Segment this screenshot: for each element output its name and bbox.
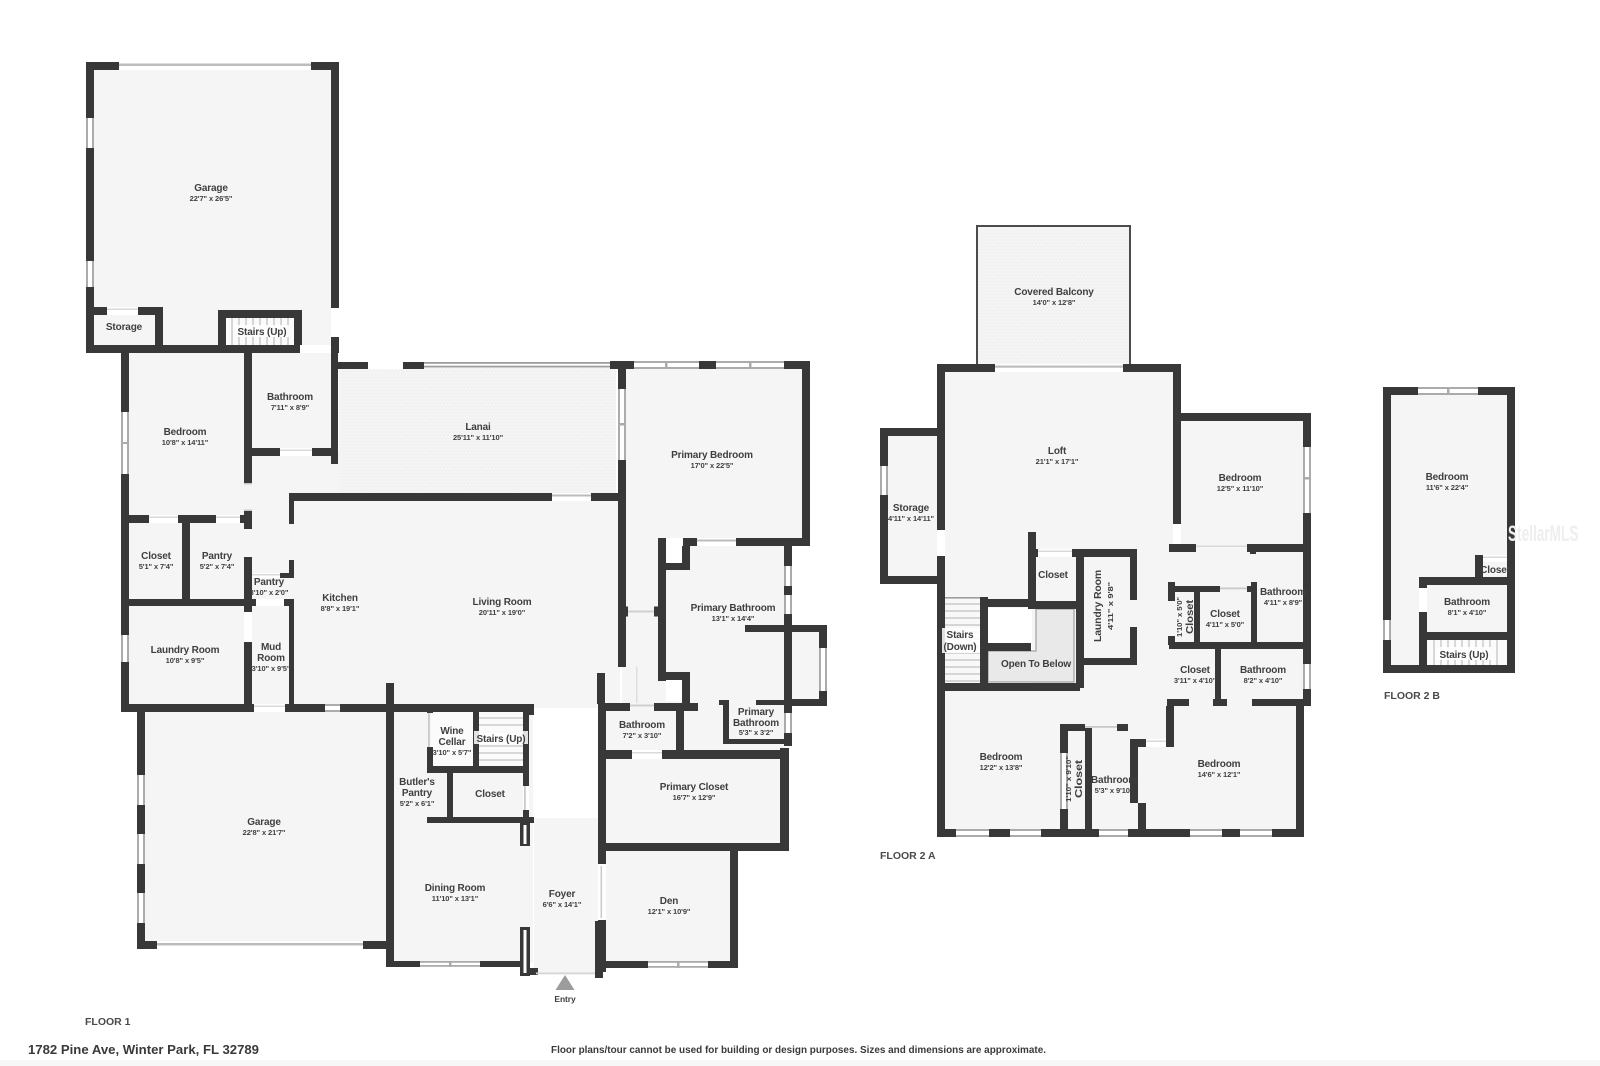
svg-text:14'0" x 12'8": 14'0" x 12'8" (1033, 298, 1076, 307)
svg-text:11'6" x 22'4": 11'6" x 22'4" (1426, 483, 1469, 492)
svg-text:17'0" x 22'5": 17'0" x 22'5" (691, 461, 734, 470)
svg-text:14'6" x 12'1": 14'6" x 12'1" (1198, 770, 1241, 779)
svg-text:Closet: Closet (1185, 599, 1196, 634)
svg-text:4'11" x 5'0": 4'11" x 5'0" (1206, 620, 1245, 629)
svg-text:6'6" x 14'1": 6'6" x 14'1" (543, 900, 582, 909)
svg-text:1'10" x 5'0": 1'10" x 5'0" (1175, 596, 1184, 637)
svg-text:StellarMLS: StellarMLS (1508, 521, 1578, 546)
svg-text:3'10" x 5'7": 3'10" x 5'7" (433, 748, 472, 757)
svg-text:Stairs (Up): Stairs (Up) (238, 327, 287, 338)
svg-text:16'7" x 12'9": 16'7" x 12'9" (673, 793, 716, 802)
svg-text:Closet: Closet (475, 789, 505, 800)
svg-text:Bathroom: Bathroom (1260, 587, 1306, 598)
svg-text:21'1" x 17'1": 21'1" x 17'1" (1036, 457, 1079, 466)
svg-text:Stairs: Stairs (947, 630, 974, 641)
svg-text:Entry: Entry (554, 994, 576, 1004)
svg-text:Den: Den (660, 896, 678, 907)
svg-text:Foyer: Foyer (549, 889, 576, 900)
svg-text:Floor plans/tour cannot be use: Floor plans/tour cannot be used for buil… (551, 1045, 1046, 1056)
svg-text:Pantry: Pantry (202, 551, 233, 562)
svg-text:4'11" x 14'11": 4'11" x 14'11" (888, 514, 935, 523)
svg-text:Pantry: Pantry (254, 577, 285, 588)
svg-text:Bedroom: Bedroom (1219, 473, 1262, 484)
svg-text:Covered Balcony: Covered Balcony (1014, 287, 1094, 298)
svg-text:Bedroom: Bedroom (1426, 472, 1469, 483)
svg-text:8'8" x 19'1": 8'8" x 19'1" (321, 604, 360, 613)
svg-text:8'1" x 4'10": 8'1" x 4'10" (1448, 608, 1487, 617)
svg-text:20'11" x 19'0": 20'11" x 19'0" (479, 608, 526, 617)
svg-text:Living Room: Living Room (473, 597, 532, 608)
svg-text:Pantry: Pantry (402, 788, 433, 799)
svg-text:Closet: Closet (1180, 665, 1210, 676)
svg-text:4'11" x 8'9": 4'11" x 8'9" (1264, 598, 1303, 607)
svg-text:Closet: Closet (1480, 565, 1510, 576)
svg-text:Lanai: Lanai (465, 422, 491, 433)
svg-text:Loft: Loft (1048, 446, 1067, 457)
svg-text:Wine: Wine (440, 726, 464, 737)
svg-text:Laundry Room: Laundry Room (151, 645, 220, 656)
svg-text:Garage: Garage (194, 183, 228, 194)
svg-text:Garage: Garage (247, 817, 281, 828)
svg-text:Room: Room (257, 653, 285, 664)
svg-text:Primary: Primary (738, 707, 775, 718)
svg-text:1'10" x 9'10": 1'10" x 9'10" (1064, 755, 1073, 802)
svg-text:22'8" x 21'7": 22'8" x 21'7" (243, 828, 286, 837)
svg-text:7'2" x 3'10": 7'2" x 3'10" (623, 731, 662, 740)
svg-text:Primary Bedroom: Primary Bedroom (671, 450, 753, 461)
svg-text:22'7" x 26'5": 22'7" x 26'5" (190, 194, 233, 203)
svg-text:5'2" x 6'1": 5'2" x 6'1" (400, 799, 435, 808)
svg-text:3'10" x 9'5": 3'10" x 9'5" (252, 664, 291, 673)
svg-text:Bathroom: Bathroom (1240, 665, 1286, 676)
svg-text:12'2" x 13'8": 12'2" x 13'8" (980, 763, 1023, 772)
svg-text:Storage: Storage (893, 503, 930, 514)
svg-text:13'1" x 14'4": 13'1" x 14'4" (712, 614, 755, 623)
svg-text:Cellar: Cellar (439, 737, 466, 748)
svg-text:Stairs (Up): Stairs (Up) (1440, 650, 1489, 661)
svg-text:Kitchen: Kitchen (322, 593, 358, 604)
svg-text:Closet: Closet (141, 551, 171, 562)
svg-text:25'11" x 11'10": 25'11" x 11'10" (453, 433, 504, 442)
svg-text:4'11" x 9'8": 4'11" x 9'8" (1106, 581, 1115, 630)
svg-text:11'10" x 13'1": 11'10" x 13'1" (432, 894, 479, 903)
svg-text:5'3" x 3'2": 5'3" x 3'2" (739, 728, 774, 737)
svg-text:Open To Below: Open To Below (1001, 659, 1071, 670)
svg-text:3'10" x 2'0": 3'10" x 2'0" (250, 588, 289, 597)
svg-text:Stairs (Up): Stairs (Up) (477, 734, 526, 745)
svg-text:3'11" x 4'10": 3'11" x 4'10" (1174, 676, 1217, 685)
svg-text:FLOOR 1: FLOOR 1 (85, 1016, 131, 1028)
svg-text:Storage: Storage (106, 322, 143, 333)
svg-text:FLOOR 2 A: FLOOR 2 A (880, 850, 936, 862)
svg-text:Bathroom: Bathroom (1444, 597, 1490, 608)
svg-text:Dining Room: Dining Room (425, 883, 486, 894)
svg-text:5'1" x 7'4": 5'1" x 7'4" (139, 562, 174, 571)
svg-text:12'1" x 10'9": 12'1" x 10'9" (648, 907, 691, 916)
svg-text:1782 Pine Ave, Winter Park, FL: 1782 Pine Ave, Winter Park, FL 32789 (28, 1042, 259, 1057)
svg-text:Closet: Closet (1038, 570, 1068, 581)
svg-text:Closet: Closet (1074, 759, 1085, 798)
svg-text:Butler's: Butler's (399, 777, 435, 788)
svg-text:FLOOR 2 B: FLOOR 2 B (1384, 690, 1440, 702)
svg-text:Mud: Mud (261, 642, 281, 653)
svg-text:Bedroom: Bedroom (164, 427, 207, 438)
svg-text:Closet: Closet (1210, 609, 1240, 620)
svg-text:Bedroom: Bedroom (1198, 759, 1241, 770)
svg-text:Primary Closet: Primary Closet (660, 782, 729, 793)
svg-text:8'2" x 4'10": 8'2" x 4'10" (1244, 676, 1283, 685)
svg-text:5'2" x 7'4": 5'2" x 7'4" (200, 562, 235, 571)
svg-text:Laundry Room: Laundry Room (1093, 570, 1104, 642)
svg-text:Bathroom: Bathroom (619, 720, 665, 731)
svg-text:Primary Bathroom: Primary Bathroom (691, 603, 776, 614)
svg-text:Bedroom: Bedroom (980, 752, 1023, 763)
svg-text:(Down): (Down) (944, 642, 977, 653)
svg-text:Bathroom: Bathroom (267, 392, 313, 403)
svg-text:7'11" x 8'9": 7'11" x 8'9" (271, 403, 310, 412)
svg-text:12'5" x 11'10": 12'5" x 11'10" (1217, 484, 1264, 493)
svg-text:Bathroom: Bathroom (1091, 775, 1137, 786)
svg-text:5'3" x 9'10": 5'3" x 9'10" (1095, 786, 1134, 795)
svg-text:10'8" x 9'5": 10'8" x 9'5" (166, 656, 205, 665)
svg-text:10'8" x 14'11": 10'8" x 14'11" (162, 438, 209, 447)
